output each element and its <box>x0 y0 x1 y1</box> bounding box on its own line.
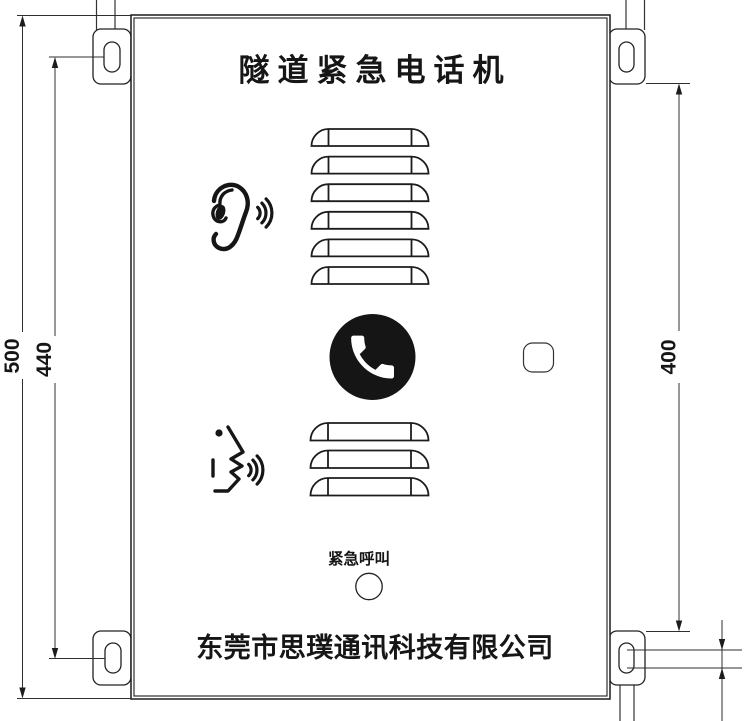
dimension-label-440: 440 <box>33 342 56 377</box>
mounting-bracket-bottom-right <box>609 631 645 685</box>
indicator-window <box>524 343 554 372</box>
technical-drawing-page: 500 440 400 隧道紧急电话机 紧急呼叫 东 <box>0 0 750 721</box>
emergency-call-button-hole <box>356 573 382 599</box>
drawing-canvas: 500 440 400 隧道紧急电话机 紧急呼叫 东 <box>0 0 750 721</box>
call-button-circle <box>330 314 416 400</box>
company-name: 东莞市思璞通讯科技有限公司 <box>196 632 554 663</box>
mounting-bracket-top-right <box>609 29 645 84</box>
arrowhead <box>676 621 682 632</box>
mouth-dot <box>215 429 222 436</box>
dimension-label-400: 400 <box>658 339 681 374</box>
arrowhead <box>719 668 725 679</box>
mount-slot-hole <box>104 42 120 72</box>
call-button <box>330 314 416 400</box>
mount-slot-hole <box>105 643 121 673</box>
speaker-grille-bottom <box>311 423 429 496</box>
arrowhead <box>52 648 58 659</box>
dimension-label-500: 500 <box>1 338 24 373</box>
arrowhead <box>19 688 25 699</box>
arrowhead <box>19 16 25 27</box>
mount-slot-hole <box>619 42 634 72</box>
arrowhead <box>676 84 682 95</box>
arrowhead <box>52 57 58 68</box>
emergency-call-label: 紧急呼叫 <box>328 549 390 568</box>
arrowhead <box>719 639 725 650</box>
panel-title: 隧道紧急电话机 <box>239 53 512 88</box>
